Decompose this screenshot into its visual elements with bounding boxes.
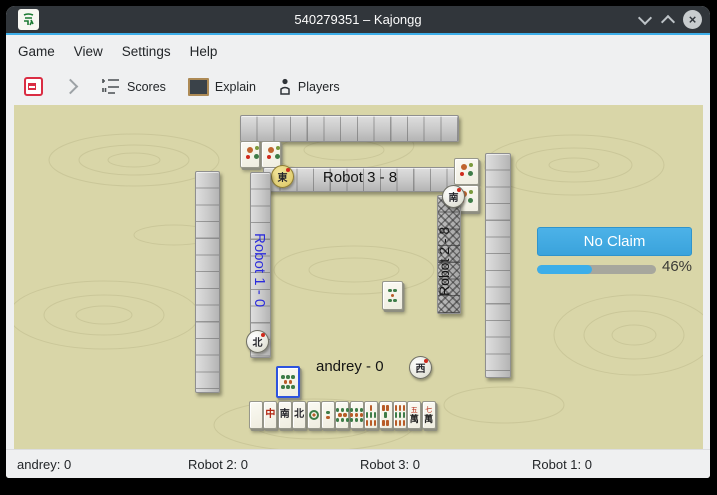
game-board: Robot 3 - 8 東 Robot 1 - 0 北 Robot 2 - 8 … [14, 105, 703, 449]
explain-button[interactable]: Explain [188, 78, 256, 96]
minimize-button[interactable] [635, 10, 654, 29]
hand-tile-south-wind[interactable]: 南 [278, 401, 292, 429]
north-wind-disc: 北 [246, 330, 269, 353]
hand-tile-bamboo-9[interactable] [393, 401, 407, 429]
hand-tile-bamboo-5[interactable] [379, 401, 393, 429]
explain-label: Explain [215, 80, 256, 94]
no-claim-button[interactable]: No Claim [537, 227, 692, 256]
robot1-label: Robot 1 - 0 [251, 200, 268, 340]
status-bar: andrey: 0 Robot 2: 0 Robot 3: 0 Robot 1:… [6, 449, 710, 478]
west-wind-disc: 西 [409, 356, 432, 379]
players-button[interactable]: Players [278, 78, 340, 95]
close-button[interactable]: × [683, 10, 702, 29]
menu-help[interactable]: Help [190, 44, 218, 59]
robot3-bonus-tiles [240, 141, 281, 168]
menu-game[interactable]: Game [18, 44, 55, 59]
window-title: 540279351 – Kajongg [6, 12, 710, 27]
status-robot3: Robot 3: 0 [360, 457, 420, 472]
discard-tile-dots-8-focused[interactable] [276, 366, 300, 398]
hand-tile-character-7[interactable]: 七萬 [422, 401, 436, 429]
progress-fill [537, 265, 592, 274]
south-wind-disc: 南 [442, 185, 465, 208]
discard-tile-dots-5 [382, 281, 403, 310]
blackboard-icon [188, 78, 209, 96]
status-andrey: andrey: 0 [17, 457, 71, 472]
abort-game-button[interactable] [24, 77, 43, 96]
bonus-flower-tile [240, 141, 260, 168]
claim-timeout-progressbar [537, 265, 656, 274]
andrey-hand: 中南北五萬七萬 [249, 401, 436, 429]
hand-tile-dots-9[interactable] [350, 401, 364, 429]
status-robot2: Robot 2: 0 [188, 457, 248, 472]
east-wind-disc: 東 [271, 165, 294, 188]
hand-tile-north-wind[interactable]: 北 [292, 401, 306, 429]
progress-percent: 46% [662, 258, 692, 275]
hand-tile-character-5[interactable]: 五萬 [407, 401, 421, 429]
wall-left [195, 171, 220, 393]
kajongg-window: 540279351 – Kajongg × Game View Settings… [6, 6, 710, 478]
toolbar: Scores Explain Players [6, 68, 710, 105]
menu-settings[interactable]: Settings [122, 44, 171, 59]
scores-button[interactable]: Scores [102, 78, 166, 95]
menu-bar: Game View Settings Help [6, 35, 710, 68]
hand-tile-dots-2[interactable] [321, 401, 335, 429]
bonus-flower-tile [454, 158, 479, 185]
wall-top [240, 115, 459, 142]
abort-game-icon [24, 77, 43, 96]
andrey-label: andrey - 0 [316, 358, 384, 375]
players-label: Players [298, 80, 340, 94]
wall-right [485, 153, 511, 378]
status-robot1: Robot 1: 0 [532, 457, 592, 472]
hand-tile-dots-8[interactable] [335, 401, 349, 429]
step-forward-button[interactable] [65, 81, 80, 92]
hand-tile-red-dragon[interactable]: 中 [263, 401, 277, 429]
maximize-button[interactable] [658, 10, 677, 29]
chevron-right-icon [63, 79, 79, 95]
scores-label: Scores [127, 80, 166, 94]
menu-view[interactable]: View [74, 44, 103, 59]
robot2-label: Robot 2 - 8 [436, 205, 452, 317]
person-icon [278, 78, 292, 95]
scores-icon [102, 78, 121, 95]
hand-tile-dots-1[interactable] [307, 401, 321, 429]
wood-grain-texture [14, 105, 703, 449]
titlebar[interactable]: 540279351 – Kajongg × [6, 6, 710, 33]
hand-tile-bamboo-7[interactable] [364, 401, 378, 429]
bonus-flower-tile [261, 141, 281, 168]
hand-tile-white-dragon[interactable] [249, 401, 263, 429]
